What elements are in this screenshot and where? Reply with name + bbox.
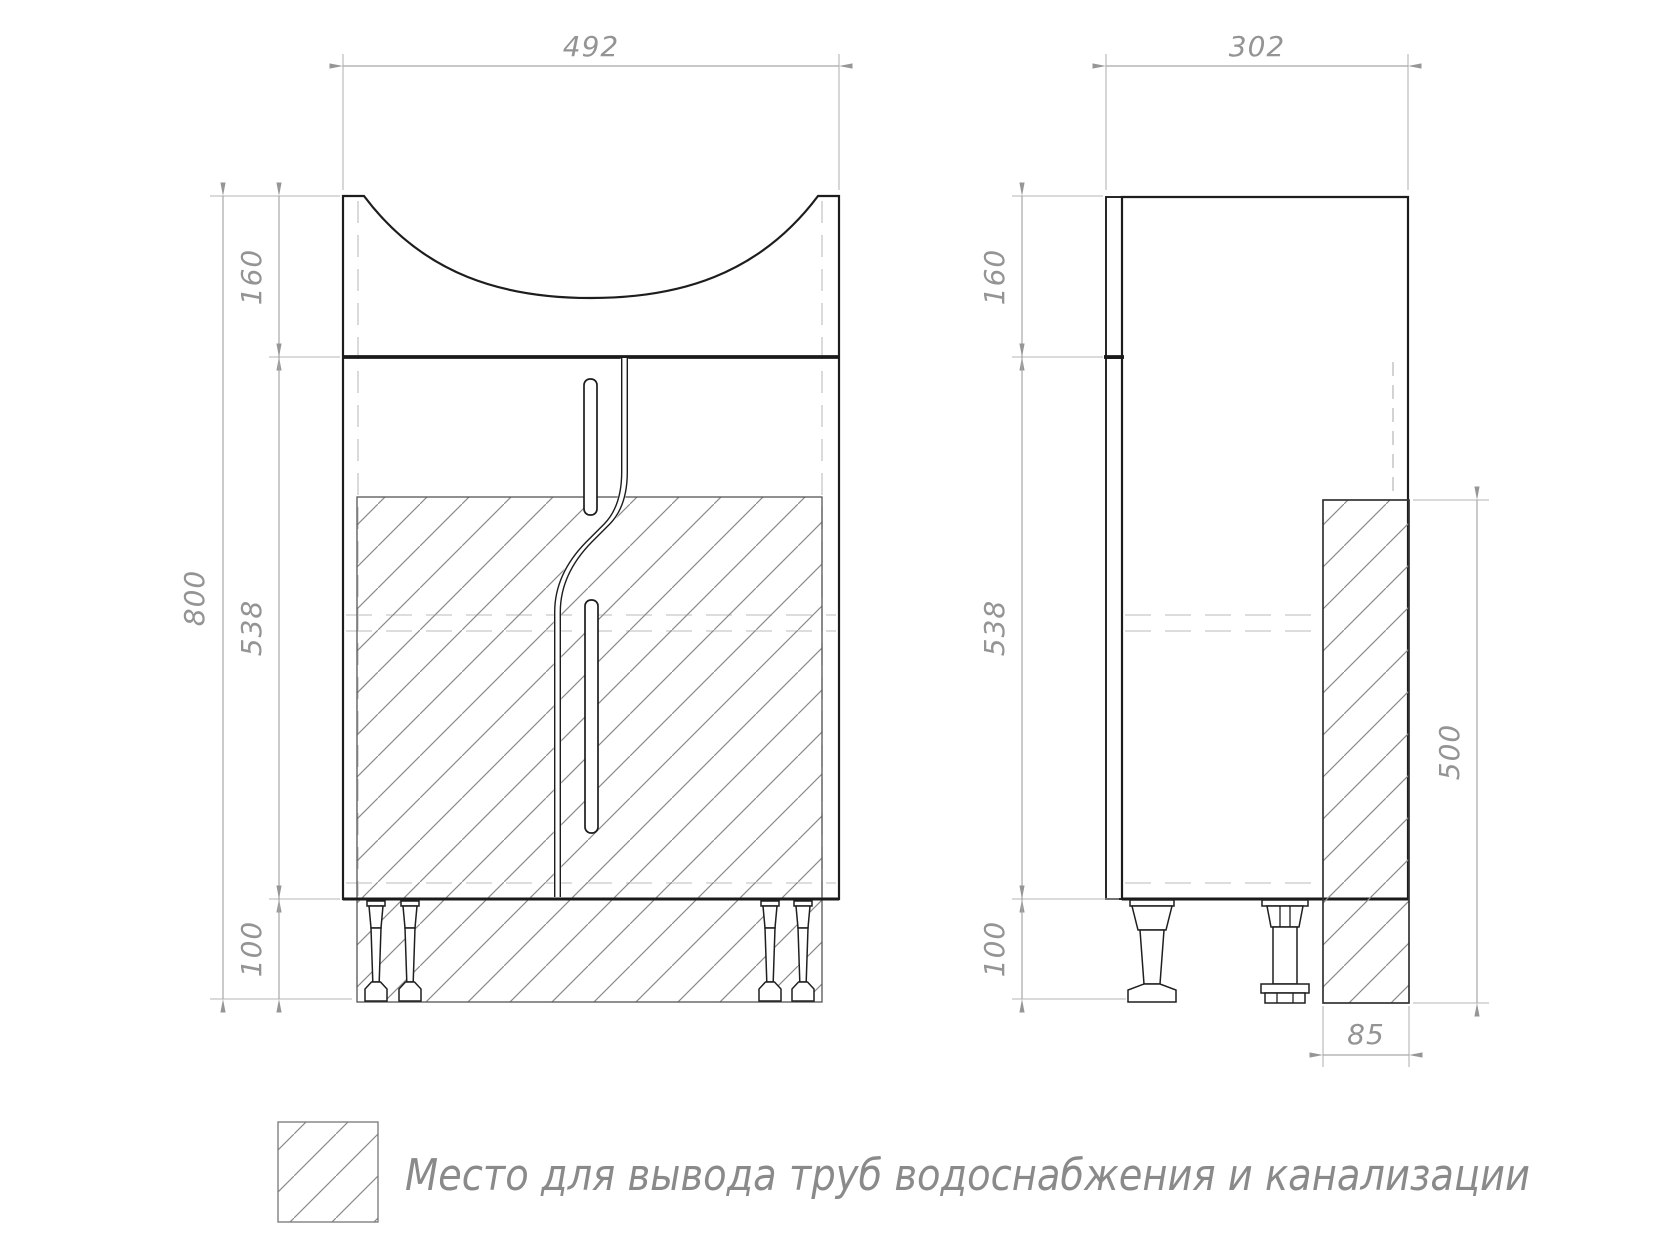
front-view bbox=[343, 196, 839, 1002]
dim-front-legs-height: 100 bbox=[235, 899, 279, 999]
side-adjustable-foot bbox=[1261, 900, 1309, 1003]
drawing-canvas: 492 302 800 160 538 100 bbox=[0, 0, 1680, 1260]
dim-front-legs-height-label: 100 bbox=[235, 921, 268, 977]
legend-label: Место для вывода труб водоснабжения и ка… bbox=[405, 1150, 1530, 1201]
dim-pipe-zone-height: 500 bbox=[1413, 500, 1489, 1003]
dim-side-basin-height-label: 160 bbox=[978, 249, 1011, 305]
dim-front-total-height: 800 bbox=[178, 196, 223, 999]
dim-pipe-zone-depth: 85 bbox=[1323, 1006, 1409, 1067]
dim-side-legs-height: 100 bbox=[978, 899, 1022, 999]
dim-front-body-height: 538 bbox=[235, 357, 279, 899]
dim-front-body-height-label: 538 bbox=[235, 600, 268, 656]
dim-side-depth-label: 302 bbox=[1229, 30, 1285, 63]
dim-pipe-zone-depth-label: 85 bbox=[1347, 1018, 1385, 1051]
dim-side-legs-height-label: 100 bbox=[978, 921, 1011, 977]
side-door-lower bbox=[1106, 358, 1122, 899]
dim-front-basin-height: 160 bbox=[235, 196, 279, 357]
dim-front-width: 492 bbox=[343, 30, 839, 190]
handle-lower bbox=[585, 600, 598, 833]
side-view bbox=[1104, 197, 1409, 1003]
side-door-upper bbox=[1106, 197, 1122, 357]
pipe-zone-hatch-side bbox=[1323, 500, 1409, 1003]
dim-side-depth: 302 bbox=[1106, 30, 1408, 190]
side-leg bbox=[1128, 900, 1176, 1002]
legend: Место для вывода труб водоснабжения и ка… bbox=[278, 1122, 1530, 1222]
legend-hatch-swatch bbox=[278, 1122, 378, 1222]
dim-side-basin-height: 160 bbox=[978, 196, 1022, 357]
dim-front-total-height-label: 800 bbox=[178, 570, 211, 626]
dim-front-basin-height-label: 160 bbox=[235, 249, 268, 305]
dim-side-body-height-label: 538 bbox=[978, 600, 1011, 656]
dim-pipe-zone-height-label: 500 bbox=[1433, 724, 1466, 780]
dim-side-body-height: 538 bbox=[978, 357, 1022, 899]
dim-front-width-label: 492 bbox=[563, 30, 619, 63]
handle-upper bbox=[584, 379, 597, 515]
